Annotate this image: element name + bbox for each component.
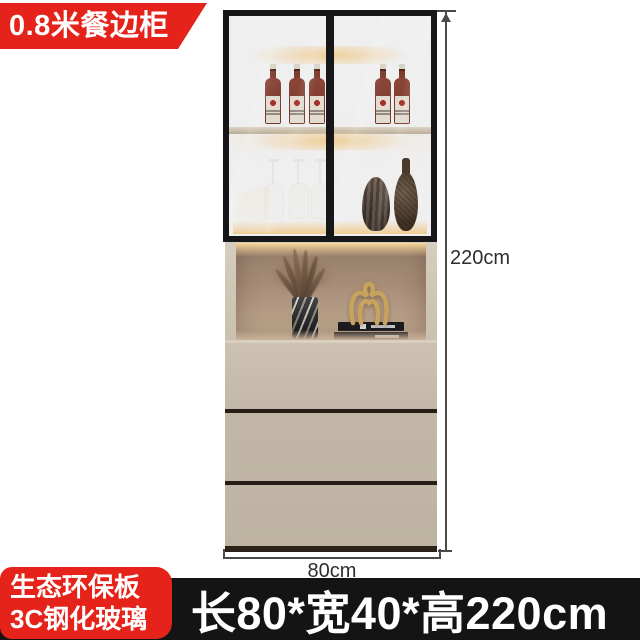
width-dimension-line [223,557,441,559]
cabinet-plinth [225,546,437,552]
title-ribbon-label: 0.8米餐边柜 [0,3,207,49]
material-badge-line2: 3C钢化玻璃 [10,603,172,635]
material-badge: 生态环保板 3C钢化玻璃 [0,567,172,639]
open-shelf-section [225,242,437,341]
width-dimension-tick [439,549,441,559]
gold-sculpture-icon [345,276,393,326]
height-dimension-line [445,11,447,551]
height-dimension-label: 220cm [450,247,510,270]
product-image: 0.8米餐边柜 [0,0,640,640]
drawer-gap [225,481,437,485]
title-ribbon: 0.8米餐边柜 [0,3,207,49]
display-niche [236,243,426,340]
drawer-gap [225,409,437,413]
size-bar-text: 长80*宽40*高220cm [165,578,634,640]
cabinet-frame [223,10,437,242]
material-badge-line1: 生态环保板 [10,571,172,603]
drawer-section [225,340,437,552]
marble-vase-icon [292,297,318,339]
